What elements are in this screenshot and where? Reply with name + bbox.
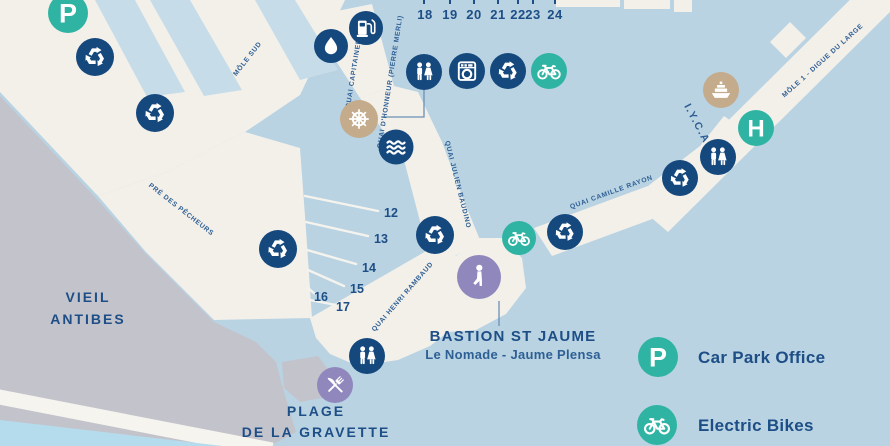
legend-car-park-label: Car Park Office: [698, 348, 825, 367]
nomade-statue-icon: [457, 255, 501, 299]
toilets-icon: [406, 54, 442, 90]
pontoon-number: 24: [547, 7, 563, 22]
label-plage-1: PLAGE: [287, 403, 345, 419]
pontoon-number: 17: [336, 300, 350, 314]
waves-icon: [379, 130, 414, 165]
quay-strip: [624, 0, 670, 9]
recycling-point-icon: [547, 214, 583, 250]
label-plage-2: DE LA GRAVETTE: [242, 424, 391, 440]
h-point-marker: H: [738, 110, 774, 146]
pontoon-number: 12: [384, 206, 398, 220]
label-vieil-antibes-1: VIEIL: [65, 289, 110, 305]
label-bastion: BASTION ST JAUME: [430, 328, 597, 345]
recycling-point-icon: [416, 216, 454, 254]
parking-letter: P: [59, 0, 77, 29]
fuel-station-icon: [349, 11, 383, 45]
electric-bike-icon: [531, 53, 567, 89]
pontoon-number: 23: [525, 7, 540, 22]
toilets-icon: [700, 139, 736, 175]
ferry-terminal-icon: [703, 72, 739, 108]
restaurant-icon: [317, 367, 353, 403]
label-bastion-subtitle: Le Nomade - Jaume Plensa: [425, 347, 601, 362]
h-letter: H: [747, 116, 764, 143]
car-park-icon: P: [638, 337, 678, 377]
laundry-icon: [449, 53, 485, 89]
label-vieil-antibes-2: ANTIBES: [50, 311, 125, 327]
harbour-master-wheel-icon: [340, 100, 378, 138]
recycling-point-icon: [490, 53, 526, 89]
electric-bike-icon: [502, 221, 536, 255]
legend-electric-bikes-label: Electric Bikes: [698, 416, 814, 435]
recycling-point-icon: [662, 160, 698, 196]
pontoon-number: 19: [442, 7, 457, 22]
pontoon-number: 21: [490, 7, 505, 22]
recycling-point-icon: [76, 38, 114, 76]
svg-text:P: P: [649, 343, 667, 373]
pontoon-number: 16: [314, 290, 328, 304]
recycling-point-icon: [136, 94, 174, 132]
quay-strip: [674, 0, 692, 12]
recycling-point-icon: [259, 230, 297, 268]
water-point-icon: [314, 29, 348, 63]
toilets-icon: [349, 338, 385, 374]
pontoon-number: 15: [350, 282, 364, 296]
pontoon-number: 14: [362, 261, 376, 275]
quay-strip: [556, 0, 620, 7]
pontoon-number: 13: [374, 232, 388, 246]
electric-bike-icon: [637, 405, 677, 445]
pontoon-number: 18: [417, 7, 432, 22]
port-map: MÔLE SUD QUAI CAPITAINERIE QUAI D'HONNEU…: [0, 0, 890, 446]
pontoon-number: 20: [466, 7, 481, 22]
pontoon-number: 22: [510, 7, 525, 22]
